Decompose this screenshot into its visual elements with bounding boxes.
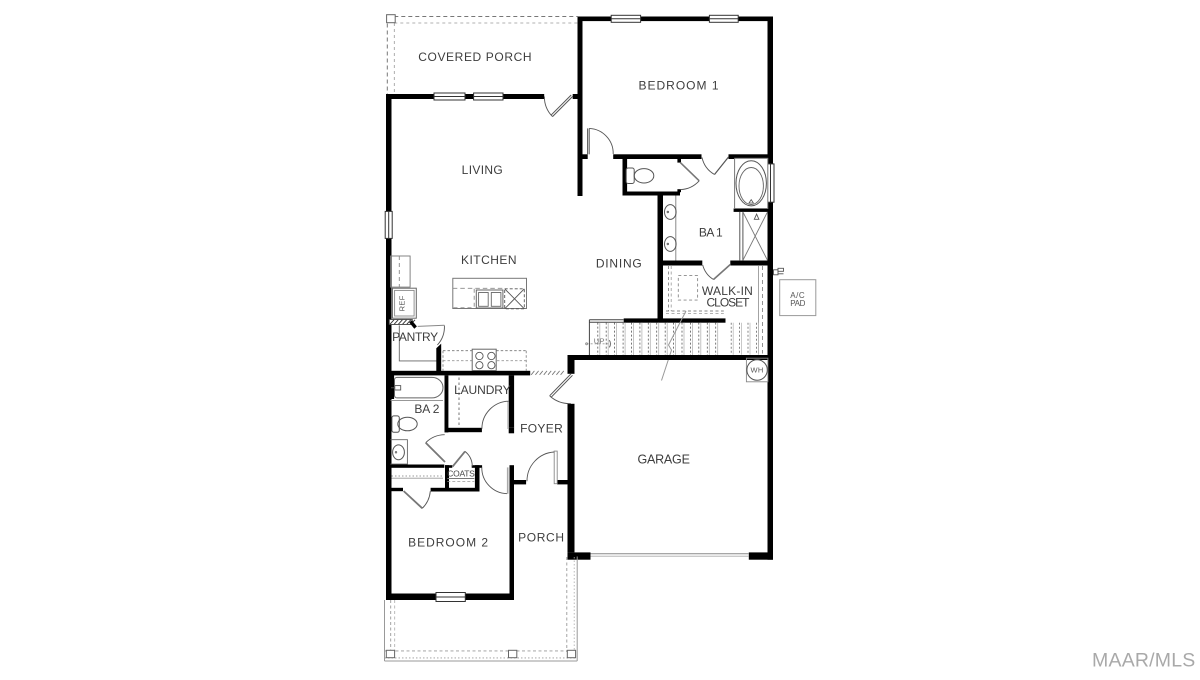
- svg-text:REF: REF: [398, 295, 407, 311]
- svg-text:CLOSET: CLOSET: [706, 296, 750, 310]
- svg-text:LAUNDRY: LAUNDRY: [454, 383, 511, 397]
- svg-text:FOYER: FOYER: [520, 422, 563, 436]
- svg-text:LIVING: LIVING: [462, 163, 503, 177]
- svg-text:BA 2: BA 2: [414, 402, 439, 416]
- svg-text:PANTRY: PANTRY: [392, 330, 438, 344]
- svg-text:COVERED PORCH: COVERED PORCH: [418, 50, 532, 64]
- svg-text:WH: WH: [751, 366, 764, 375]
- svg-text:BEDROOM 1: BEDROOM 1: [638, 79, 719, 93]
- svg-text:MAAR/MLS: MAAR/MLS: [1092, 650, 1195, 672]
- svg-text:BEDROOM 2: BEDROOM 2: [408, 536, 489, 550]
- svg-text:DINING: DINING: [596, 257, 643, 271]
- svg-text:GARAGE: GARAGE: [637, 453, 689, 467]
- svg-text:KITCHEN: KITCHEN: [461, 253, 517, 267]
- svg-text:PAD: PAD: [790, 299, 805, 308]
- svg-text:PORCH: PORCH: [518, 530, 565, 544]
- svg-text:COATS: COATS: [447, 469, 475, 479]
- svg-text:BA 1: BA 1: [699, 226, 723, 240]
